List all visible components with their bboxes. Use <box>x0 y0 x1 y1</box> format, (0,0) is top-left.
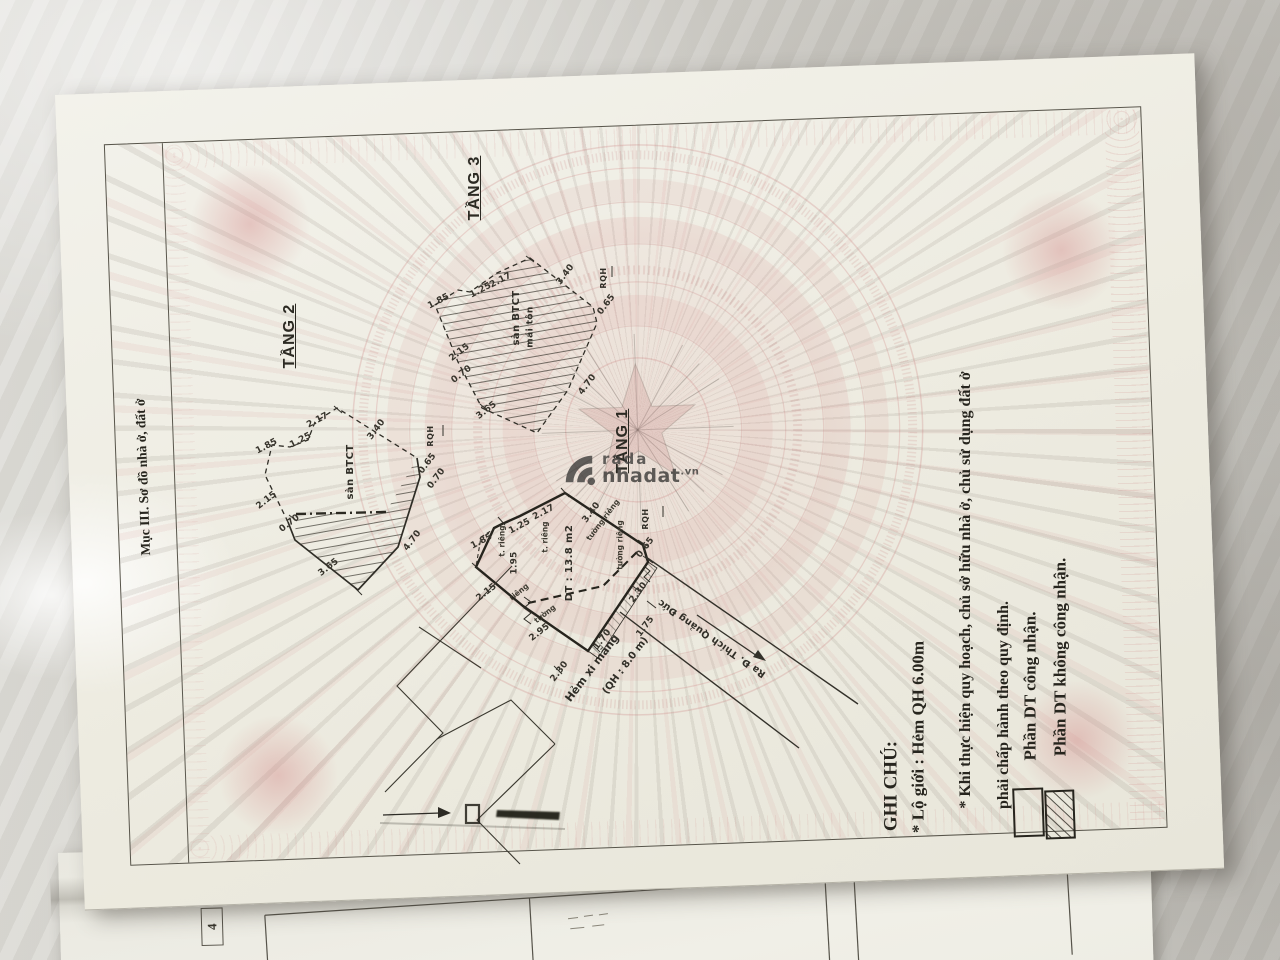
note-quy-hoach-1: * Khi thực hiện quy hoạch, chủ sở hữu nh… <box>958 371 974 808</box>
notes-heading: GHI CHÚ: <box>882 741 901 831</box>
street-arrow-icon <box>753 650 766 661</box>
dim-label: 1.95 <box>511 551 520 574</box>
note-quy-hoach-2: phải chấp hành theo quy định. <box>996 601 1012 809</box>
wall-label: t. riêng <box>498 525 506 556</box>
wall-label: t. riêng <box>541 521 549 552</box>
photo-of-certificate: 4 <box>0 0 1280 960</box>
plan1-area-label: DT : 13.8 m2 <box>565 525 575 601</box>
legend-not-recognized-label: Phần DT không công nhận. <box>1052 558 1069 757</box>
floor-label-tang3: TẦNG 3 <box>467 156 483 221</box>
plan3-material-label: sàn BTCT <box>512 290 522 345</box>
radar-logo-icon <box>562 452 596 486</box>
legend-box-recognized <box>1013 788 1044 836</box>
plan2-rqh-label: RQH <box>427 425 435 446</box>
plan3-roof-label: mái tôn <box>527 306 536 347</box>
watermark-tld: .vn <box>680 467 699 478</box>
plan3-rqh-label: RQH <box>600 267 608 288</box>
wall-label: tường riêng <box>616 520 624 569</box>
legend-swatches <box>1013 788 1075 838</box>
legend-box-not-recognized <box>1045 791 1075 839</box>
floor-label-tang2: TẦNG 2 <box>282 304 298 369</box>
plan1-rqh-label: RQH <box>642 508 650 529</box>
plan2-material-label: sàn BTCT <box>346 444 356 499</box>
plan-tang2 <box>265 408 420 590</box>
watermark-site: nhadat <box>602 465 680 487</box>
legend-recognized-label: Phần DT công nhận. <box>1022 612 1039 761</box>
watermark: rada nhadat.vn <box>562 452 699 486</box>
note-lo-gioi: * Lộ giới : Hẻm QH 6.00m <box>910 641 927 833</box>
scale-smudge <box>380 805 565 829</box>
